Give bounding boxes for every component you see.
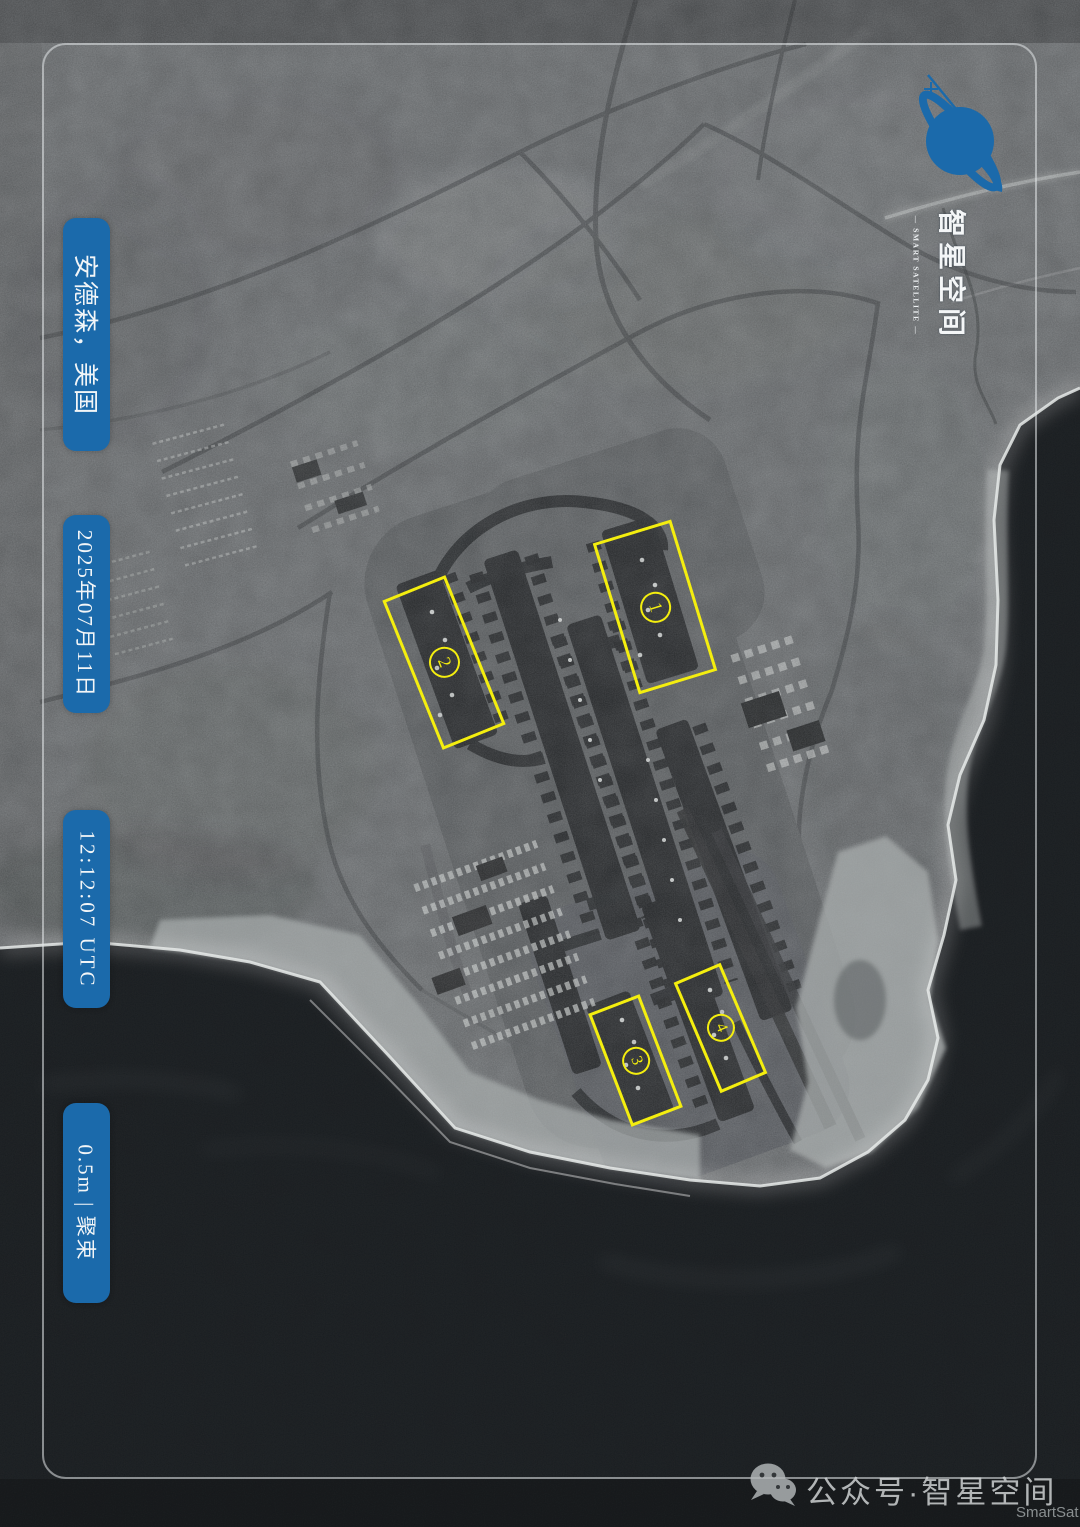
label-time-text: 12:12:07 UTC bbox=[74, 830, 99, 988]
brand-logo-cn: 智星空间 bbox=[928, 195, 978, 355]
wechat-icon bbox=[748, 1460, 798, 1508]
label-location-text: 安德森，美国 bbox=[69, 253, 105, 415]
label-date: 2025年07月11日 bbox=[63, 515, 110, 713]
sar-poster: 安德森，美国 2025年07月11日 12:12:07 UTC 0.5m | 聚… bbox=[0, 0, 1080, 1527]
label-time: 12:12:07 UTC bbox=[63, 810, 110, 1008]
label-location: 安德森，美国 bbox=[63, 218, 110, 451]
annotation-number-3: 3 bbox=[617, 1042, 653, 1078]
annotation-number-1: 1 bbox=[636, 588, 675, 627]
watermark-brand: SmartSat bbox=[1016, 1504, 1079, 1521]
label-resolution-mode-text: 0.5m | 聚束 bbox=[72, 1144, 102, 1261]
label-resolution-mode: 0.5m | 聚束 bbox=[63, 1103, 110, 1303]
label-date-text: 2025年07月11日 bbox=[72, 530, 102, 698]
annotation-number-4: 4 bbox=[702, 1010, 739, 1047]
annotation-number-2: 2 bbox=[424, 642, 464, 682]
brand-logo-en: — SMART SATELLITE — bbox=[906, 197, 926, 353]
brand-logo: 智星空间 — SMART SATELLITE — bbox=[898, 55, 1048, 345]
